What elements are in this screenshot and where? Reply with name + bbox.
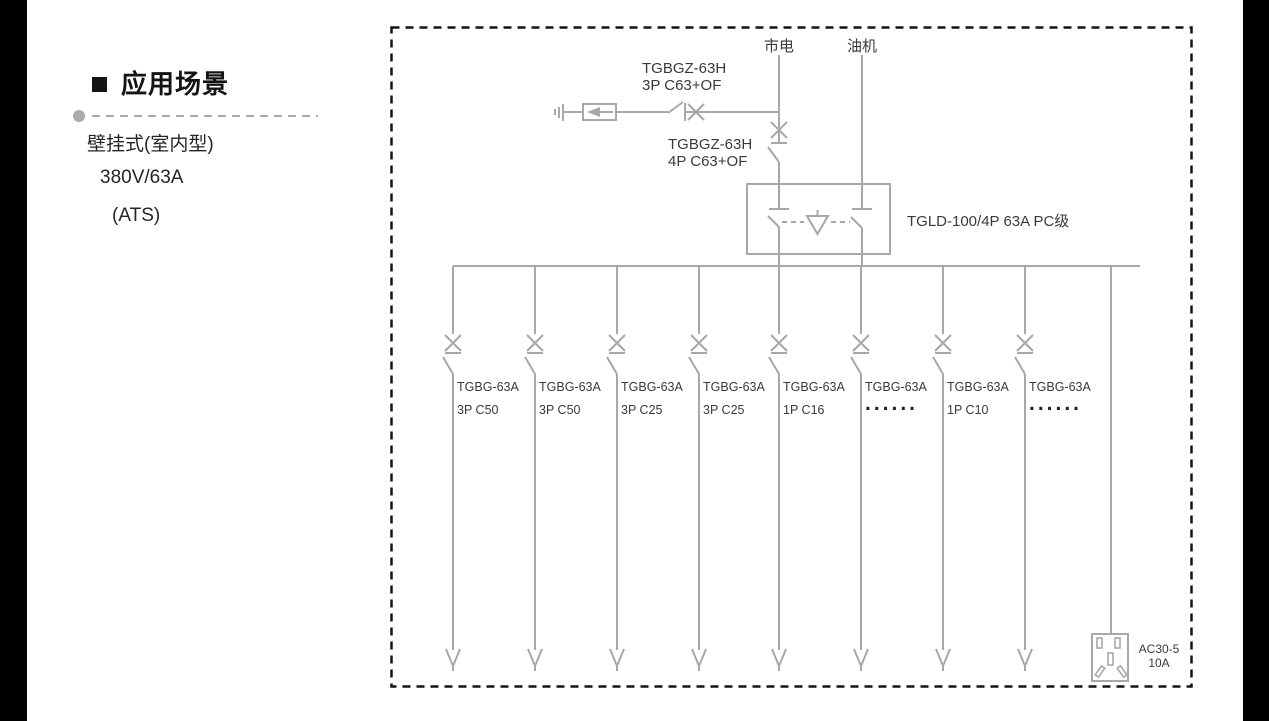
- branch-feeder-7: [933, 266, 951, 671]
- right-black-band: [1243, 0, 1269, 721]
- branch-feeder-5: [769, 266, 787, 671]
- single-line-diagram: 市电 油机 TGBGZ-63H 3P C63+OF TGBGZ-63H 4P C…: [390, 26, 1193, 688]
- branch-feeder-1: [443, 266, 461, 671]
- section-heading: 应用场景: [121, 64, 229, 101]
- application-line-mounting: 壁挂式(室内型): [87, 129, 214, 156]
- branch-label-7: TGBG-63A 1P C10: [947, 380, 1009, 417]
- source-label-generator: 油机: [847, 35, 877, 56]
- source-label-mains: 市电: [764, 35, 794, 56]
- separator-dashed-line: [92, 115, 318, 117]
- branch-label-6: TGBG-63A ......: [865, 380, 927, 408]
- application-line-ats: (ATS): [112, 205, 160, 227]
- diagram-dashed-border: [392, 28, 1192, 687]
- ground-icon: [555, 104, 563, 121]
- branch-label-8: TGBG-63A ......: [1029, 380, 1091, 408]
- mains-incoming-line: [768, 55, 787, 184]
- left-black-band: [0, 0, 27, 721]
- branch-feeder-3: [607, 266, 625, 671]
- spd-breaker-label: TGBGZ-63H 3P C63+OF: [642, 60, 726, 94]
- application-line-rating: 380V/63A: [100, 167, 183, 189]
- separator-dot: [73, 110, 85, 122]
- socket-icon: [1092, 634, 1128, 681]
- branch-label-2: TGBG-63A 3P C50: [539, 380, 601, 417]
- ats-label: TGLD-100/4P 63A PC级: [907, 210, 1069, 231]
- ats-box: [747, 184, 890, 266]
- socket-label: AC30-5 10A: [1133, 642, 1185, 670]
- diagram-linework: [390, 26, 1193, 688]
- incoming-breaker-label: TGBGZ-63H 4P C63+OF: [668, 136, 752, 170]
- branch-label-1: TGBG-63A 3P C50: [457, 380, 519, 417]
- spd-branch-breaker-symbol: [616, 102, 779, 121]
- heading-bullet-square: [92, 77, 107, 92]
- branch-label-3: TGBG-63A 3P C25: [621, 380, 683, 417]
- branch-feeder-6: [851, 266, 869, 671]
- spd-icon: [563, 104, 616, 120]
- branch-feeder-4: [689, 266, 707, 671]
- branch-feeder-2: [525, 266, 543, 671]
- branch-label-5: TGBG-63A 1P C16: [783, 380, 845, 417]
- branch-feeder-8: [1015, 266, 1033, 671]
- branch-label-4: TGBG-63A 3P C25: [703, 380, 765, 417]
